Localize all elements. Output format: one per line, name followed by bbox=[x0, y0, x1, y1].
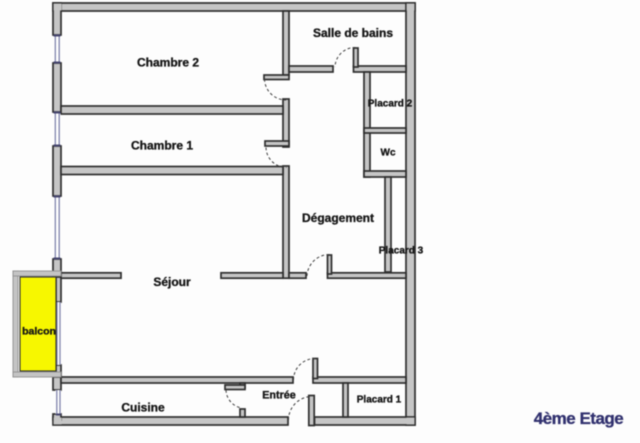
svg-text:4ème Etage: 4ème Etage bbox=[534, 409, 624, 428]
svg-text:Entrée: Entrée bbox=[262, 390, 296, 402]
svg-text:Placard 3: Placard 3 bbox=[379, 246, 424, 257]
svg-text:Wc: Wc bbox=[381, 148, 396, 159]
svg-text:balcon: balcon bbox=[22, 326, 56, 338]
svg-text:Séjour: Séjour bbox=[153, 275, 191, 289]
svg-text:Chambre 2: Chambre 2 bbox=[137, 56, 199, 70]
svg-text:Placard 1: Placard 1 bbox=[357, 395, 402, 406]
svg-text:Placard 2: Placard 2 bbox=[368, 99, 413, 110]
svg-text:Dégagement: Dégagement bbox=[302, 211, 374, 225]
svg-text:Salle de bains: Salle de bains bbox=[313, 26, 393, 40]
svg-text:Chambre 1: Chambre 1 bbox=[131, 139, 193, 153]
svg-text:Cuisine: Cuisine bbox=[121, 401, 165, 415]
